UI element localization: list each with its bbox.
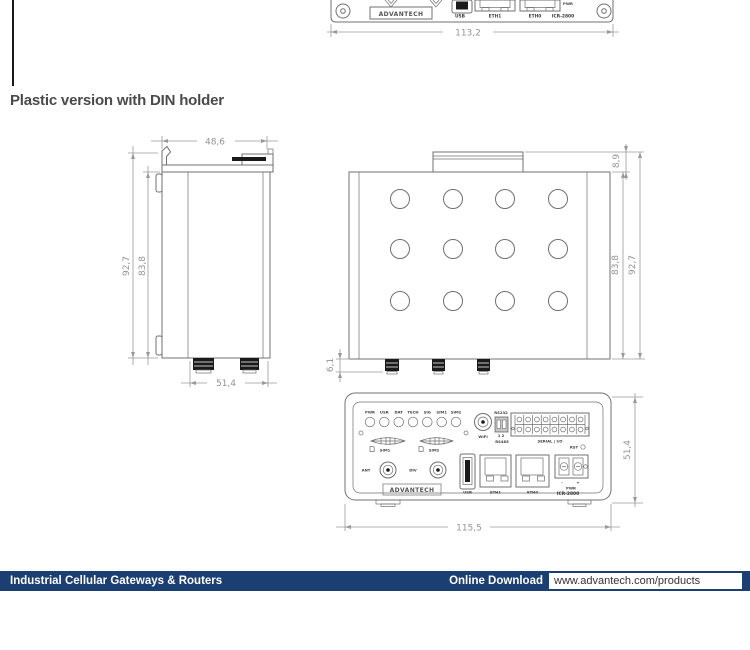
dim-height-outer: 92,7 (628, 152, 642, 359)
serial-io-label: SERIAL | I/O (537, 439, 563, 444)
antenna-connector-2 (240, 358, 259, 373)
advantech-logo-text: ADVANTECH (379, 11, 424, 18)
dim-width: 115,5 (336, 504, 620, 534)
side-tab-upper (156, 174, 162, 192)
antenna-connectors-bottom (385, 359, 490, 374)
dim-width-label: 113,2 (455, 29, 481, 39)
dim-antenna: 6,1 (326, 349, 383, 382)
footer-category-title: Industrial Cellular Gateways & Routers (10, 575, 222, 587)
div-label: DIV (409, 468, 417, 473)
led-dat-label: DAT (395, 410, 404, 415)
serial-io-terminal-block: SERIAL | I/O (511, 413, 589, 444)
dim-height: 51,4 (612, 393, 643, 507)
dim-antenna-label: 6,1 (326, 358, 336, 372)
side-view-drawing: 48,6 (95, 128, 290, 390)
led-pwr-label: PWR (365, 410, 375, 415)
online-download-label: Online Download (449, 575, 543, 587)
device-body (156, 172, 270, 358)
rst-button-hole (581, 445, 585, 449)
sim2-label: SIM2 (429, 448, 440, 453)
dim-width: 113,2 (327, 24, 619, 39)
dim-bottom-depth-label: 51,4 (216, 379, 236, 389)
rs232-label: RS232 (494, 410, 508, 415)
dim-top-width-label: 48,6 (205, 138, 225, 148)
sim2-slot: SIM2 (419, 437, 453, 453)
panel-hole-mid (464, 431, 468, 435)
led-sim1-led-label: SIM1 (436, 410, 447, 415)
eth0-port (520, 0, 560, 11)
status-leds: PWR USR DAT TECH SIG SIM1 SIM2 (365, 410, 462, 427)
model-label: ICR-2800 (552, 14, 574, 20)
serial-mode-switch: RS232 1 2 RS485 (494, 410, 509, 444)
led-sim2-led-label: SIM2 (451, 410, 462, 415)
led-usr-label: USR (380, 410, 389, 415)
rs485-label: RS485 (495, 439, 509, 444)
panel-hole-left (359, 431, 363, 435)
wifi-label: WIFI (478, 434, 488, 439)
dim-height-label: 51,4 (623, 440, 633, 460)
dim-height-outer-label: 92,7 (122, 256, 132, 276)
eth1-label: ETH1 (490, 490, 501, 495)
dim-height-inner: 83,8 (138, 166, 160, 365)
dim-din-tab-label: 8,9 (612, 154, 622, 169)
pwr-label: PWR (566, 486, 576, 491)
sim1-eject-arrow-icon (385, 0, 397, 7)
advantech-logo-plate: ADVANTECH (370, 7, 432, 19)
dim-height-outer: 92,7 (122, 146, 158, 365)
dim-din-tab: 8,9 (525, 144, 644, 180)
mounting-feet (376, 500, 591, 507)
led-sig-label: SIG (424, 410, 431, 415)
download-url-link[interactable]: www.advantech.com/products (549, 573, 742, 589)
power-terminal: - + PWR (555, 455, 588, 491)
eth0-label: ETH0 (527, 490, 538, 495)
advantech-logo-plate: ADVANTECH (383, 484, 441, 495)
device-body-top (349, 172, 610, 359)
div-connector: DIV (409, 462, 446, 478)
dim-top-width: 48,6 (151, 136, 278, 149)
rst-label: RST (570, 445, 579, 450)
sim1-label: SIM1 (380, 448, 391, 453)
eth0-port: ETH0 (516, 455, 549, 495)
page-border-line (12, 0, 14, 86)
usb-label: USB (455, 14, 466, 20)
minus-mark: - (561, 480, 563, 485)
vent-holes (391, 190, 568, 311)
usb-port: USB (460, 454, 475, 495)
advantech-logo-text: ADVANTECH (390, 487, 435, 494)
sim2-card-icon (419, 447, 423, 452)
dim-height-outer-label: 92,7 (628, 255, 638, 275)
sim1-card-icon (370, 447, 374, 452)
metal-front-panel-drawing: ADVANTECH USB ETH1 ETH0 (325, 0, 625, 48)
din-tab (433, 152, 523, 172)
wifi-antenna-connector: WIFI (475, 414, 492, 440)
reset-button: RST (570, 445, 585, 450)
left-screw (336, 4, 350, 18)
ant-label: ANT (362, 468, 371, 473)
top-view-drawing: 6,1 8,9 83,8 92,7 (325, 142, 655, 387)
sim2-eject-arrow-icon (430, 0, 442, 7)
pwr-label: PWR (563, 1, 573, 6)
eth1-port (475, 0, 515, 11)
plus-mark: + (576, 480, 579, 485)
usb-label: USB (463, 490, 472, 495)
eth1-port: ETH1 (480, 455, 511, 495)
section-heading: Plastic version with DIN holder (10, 92, 224, 109)
right-screw (597, 4, 611, 18)
eth0-label: ETH0 (529, 14, 542, 20)
led-tech-label: TECH (407, 410, 418, 415)
antenna-connector-1 (193, 358, 214, 373)
din-clip (162, 147, 273, 173)
usb-port (452, 0, 472, 13)
side-tab-lower (156, 336, 162, 355)
footer-bar: Industrial Cellular Gateways & Routers O… (0, 571, 750, 591)
dim-height-inner-label: 83,8 (611, 255, 621, 275)
dim-width-label: 115,5 (456, 524, 482, 534)
sim1-slot: SIM1 (370, 437, 405, 453)
model-label: ICR-2800 (557, 491, 579, 497)
dip-numbers-label: 1 2 (498, 433, 505, 438)
dim-height-inner-label: 83,8 (138, 256, 148, 276)
ant-connector: ANT (362, 462, 396, 478)
eth1-label: ETH1 (489, 14, 502, 20)
front-panel-drawing: PWR USR DAT TECH SIG SIM1 SIM2 WIFI RS23… (335, 392, 647, 534)
datasheet-page: ADVANTECH USB ETH1 ETH0 (0, 0, 750, 650)
